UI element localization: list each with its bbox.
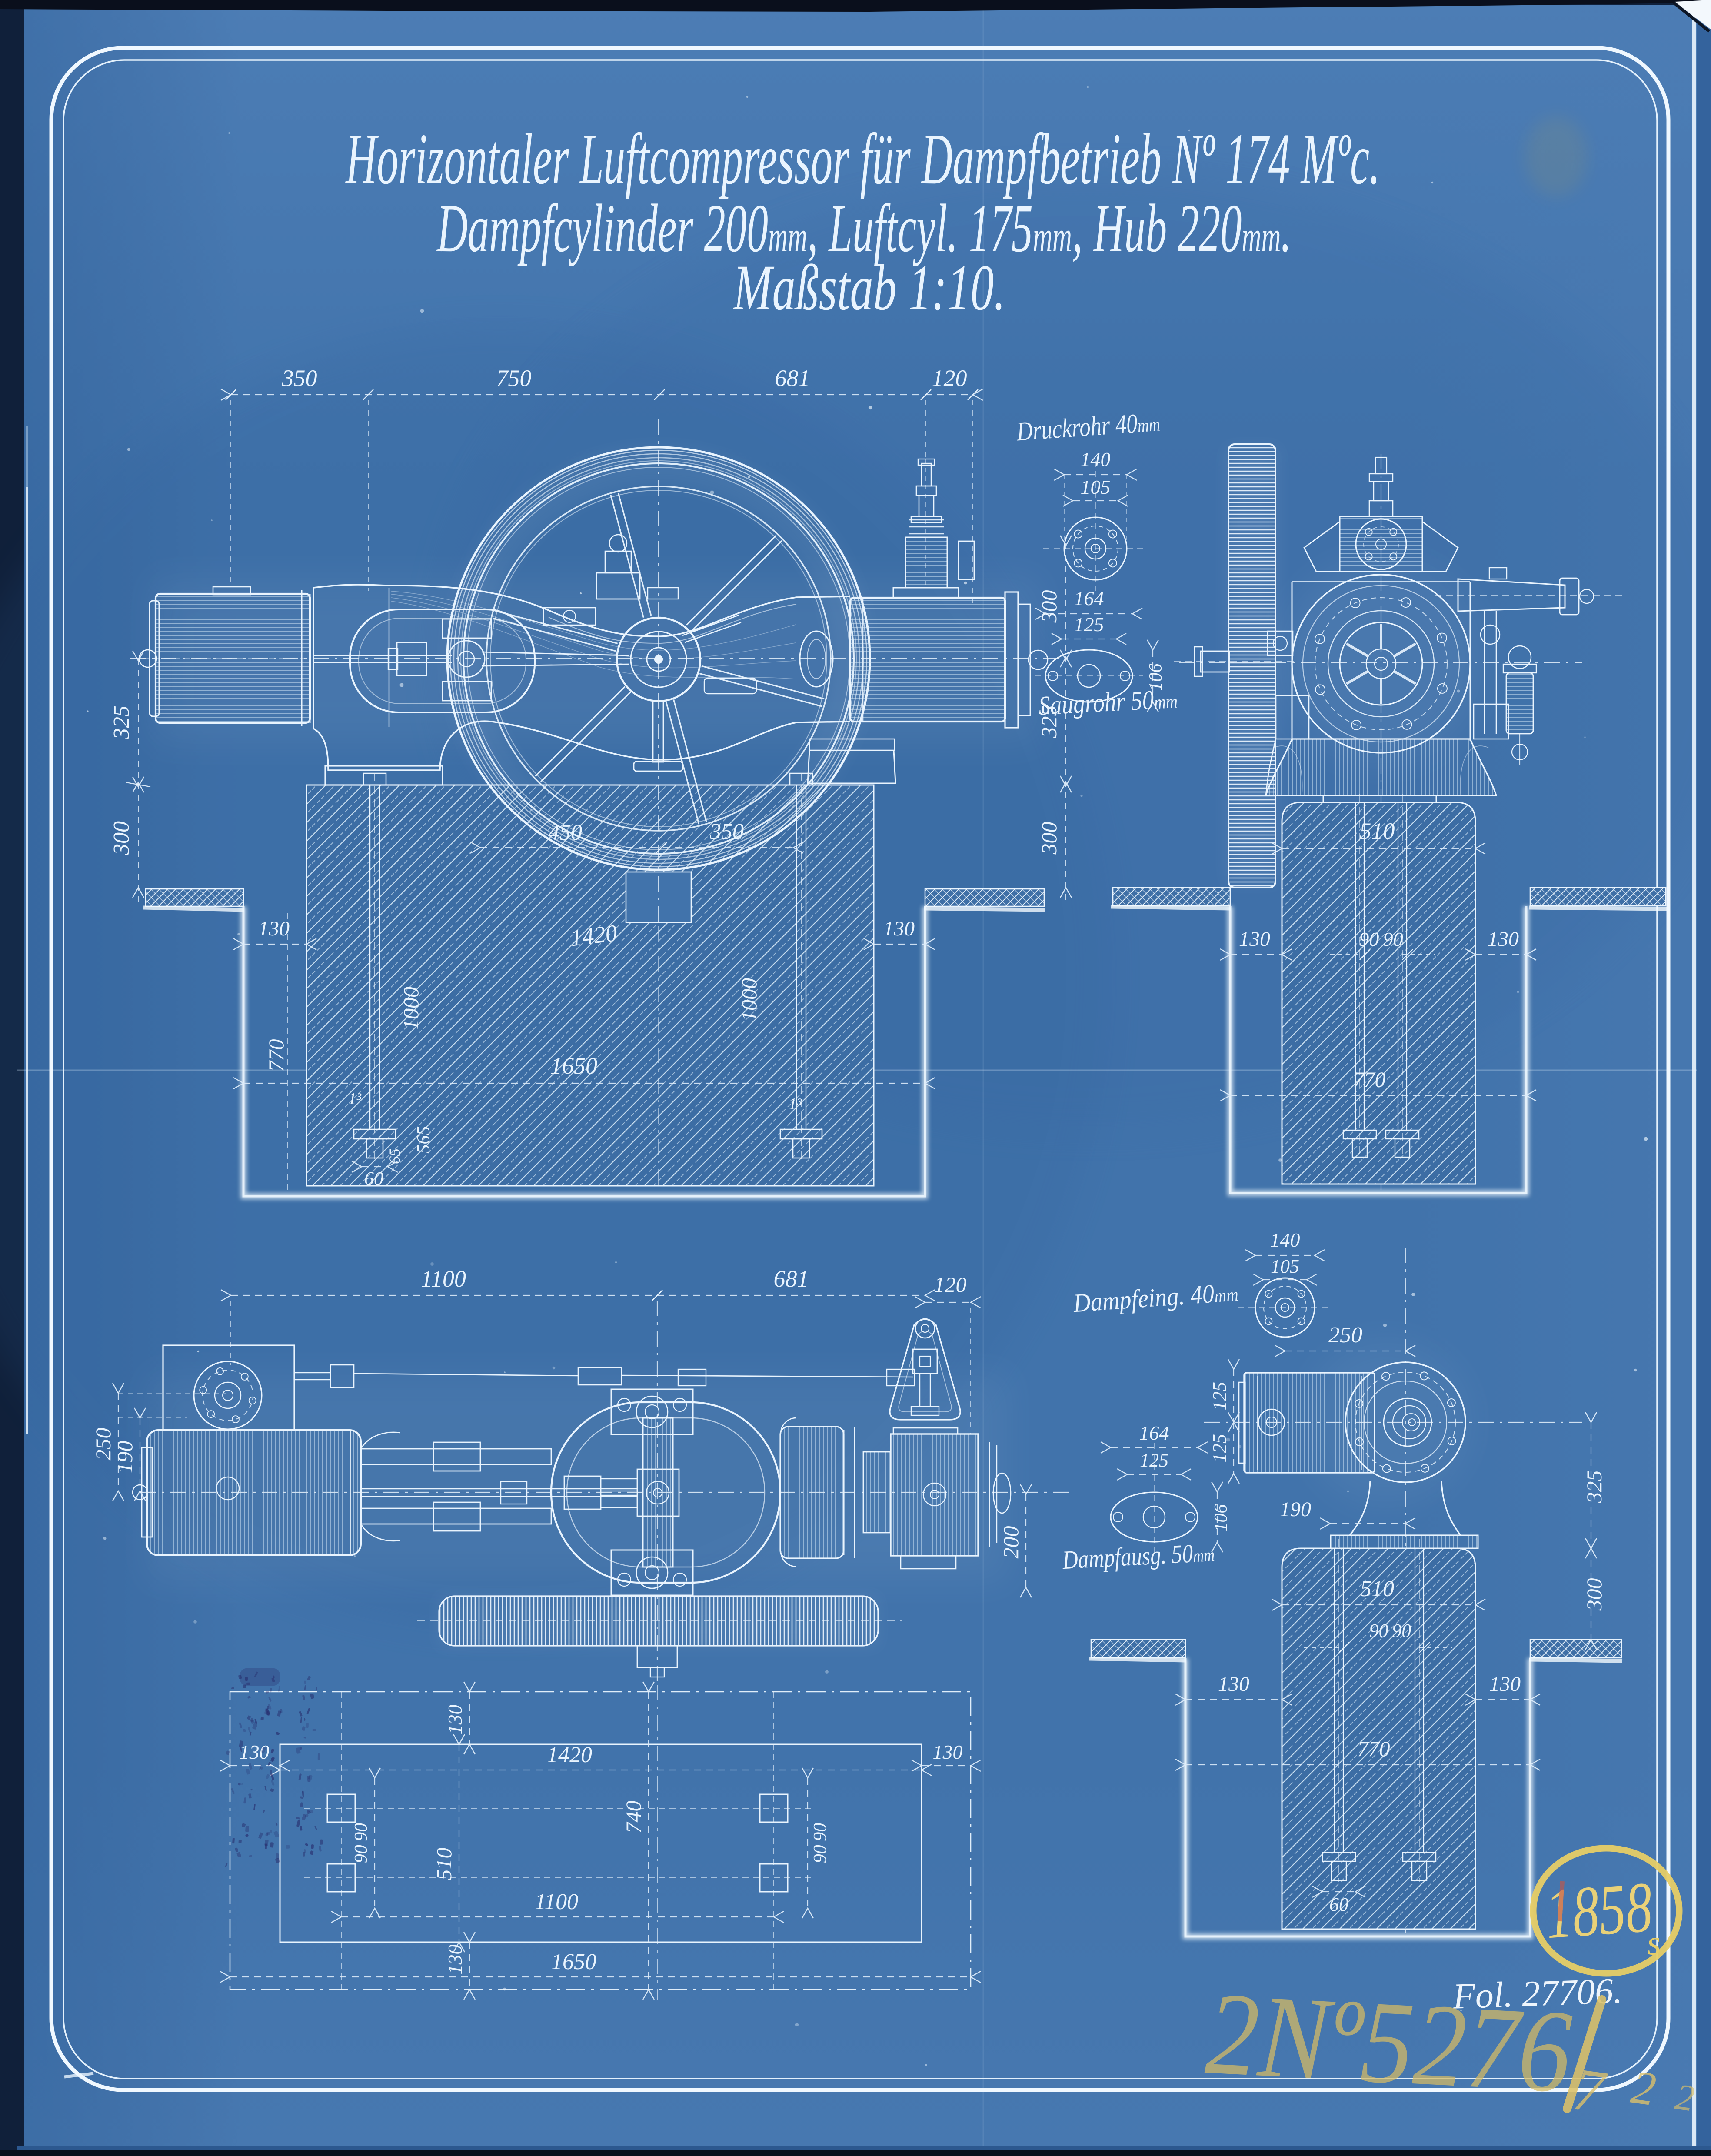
svg-text:125: 125 <box>1209 1434 1230 1463</box>
svg-text:130: 130 <box>1239 928 1270 951</box>
svg-text:200: 200 <box>999 1526 1023 1559</box>
svg-text:125: 125 <box>1209 1382 1230 1411</box>
svg-text:106: 106 <box>1211 1504 1231 1532</box>
svg-text:164: 164 <box>1074 587 1104 609</box>
svg-text:Maßstab 1:10.: Maßstab 1:10. <box>733 252 1005 324</box>
svg-text:130: 130 <box>933 1741 963 1763</box>
svg-text:350: 350 <box>282 365 317 391</box>
svg-text:130: 130 <box>1489 1673 1521 1696</box>
svg-text:140: 140 <box>1081 448 1111 470</box>
svg-text:1100: 1100 <box>421 1266 466 1292</box>
svg-text:740: 740 <box>621 1801 646 1833</box>
svg-text:300: 300 <box>1037 590 1061 623</box>
svg-text:164: 164 <box>1139 1422 1169 1444</box>
svg-text:130: 130 <box>883 917 915 940</box>
svg-text:1420: 1420 <box>547 1743 592 1767</box>
svg-text:250: 250 <box>1328 1323 1362 1347</box>
svg-text:190: 190 <box>113 1441 137 1474</box>
svg-text:681: 681 <box>775 365 810 391</box>
svg-text:120: 120 <box>932 365 967 391</box>
svg-text:130: 130 <box>1488 928 1519 951</box>
svg-text:130: 130 <box>1218 1673 1249 1696</box>
svg-text:1000: 1000 <box>399 987 423 1030</box>
svg-text:681: 681 <box>774 1266 809 1292</box>
svg-text:90 90: 90 90 <box>1359 928 1403 950</box>
svg-text:120: 120 <box>934 1272 967 1297</box>
svg-text:325: 325 <box>1582 1471 1606 1504</box>
svg-text:65: 65 <box>386 1148 403 1164</box>
svg-text:325: 325 <box>1037 705 1061 739</box>
svg-text:300: 300 <box>1037 822 1061 855</box>
svg-text:300: 300 <box>1582 1578 1606 1611</box>
svg-text:1³: 1³ <box>789 1095 802 1113</box>
svg-text:130: 130 <box>444 1945 466 1975</box>
svg-text:130: 130 <box>240 1741 270 1763</box>
svg-text:510: 510 <box>1360 1577 1394 1601</box>
svg-text:2Nº5276: 2Nº5276 <box>1203 1967 1575 2117</box>
svg-text:1100: 1100 <box>535 1890 578 1914</box>
svg-text:130: 130 <box>258 917 290 940</box>
svg-text:90 90: 90 90 <box>810 1823 830 1863</box>
svg-text:250: 250 <box>91 1428 115 1461</box>
svg-text:1000: 1000 <box>737 978 761 1021</box>
svg-text:300: 300 <box>109 821 134 855</box>
svg-text:1³: 1³ <box>348 1090 362 1108</box>
svg-text:770: 770 <box>1358 1737 1390 1761</box>
svg-text:130: 130 <box>444 1705 466 1735</box>
svg-text:60: 60 <box>364 1168 383 1189</box>
svg-text:770: 770 <box>1353 1067 1386 1091</box>
svg-text:90 90: 90 90 <box>1369 1620 1411 1641</box>
svg-text:s: s <box>1646 1923 1662 1963</box>
svg-text:1650: 1650 <box>551 1950 596 1974</box>
svg-text:Horizontaler Luftcompressor fü: Horizontaler Luftcompressor für Dampfbet… <box>345 119 1380 200</box>
svg-text:565: 565 <box>414 1126 434 1154</box>
svg-text:350: 350 <box>709 819 744 844</box>
svg-text:325: 325 <box>109 705 134 740</box>
svg-text:510: 510 <box>432 1848 456 1880</box>
svg-text:90 90: 90 90 <box>351 1823 371 1863</box>
svg-text:450: 450 <box>548 820 582 845</box>
svg-text:750: 750 <box>496 365 532 391</box>
svg-text:510: 510 <box>1360 818 1395 844</box>
svg-text:770: 770 <box>264 1039 288 1072</box>
svg-text:190: 190 <box>1280 1498 1311 1521</box>
svg-text:1650: 1650 <box>550 1053 597 1079</box>
svg-text:60: 60 <box>1329 1894 1348 1915</box>
